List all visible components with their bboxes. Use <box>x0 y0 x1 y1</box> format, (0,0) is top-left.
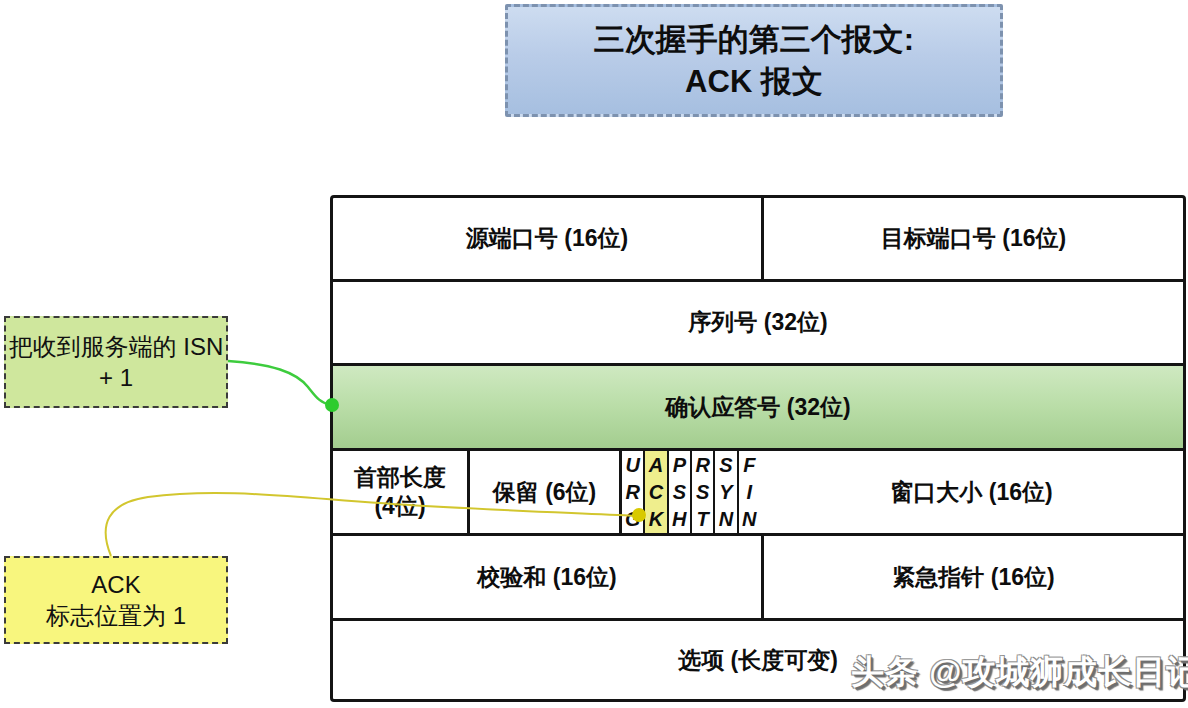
flag-ack-highlighted: A C K <box>643 451 666 533</box>
flag-fin: F I N <box>737 451 760 533</box>
title-box: 三次握手的第三个报文: ACK 报文 <box>505 4 1003 117</box>
ack-annotation-box: ACK 标志位置为 1 <box>4 556 228 644</box>
isn-note-line-1: 把收到服务端的 ISN <box>9 331 224 362</box>
isn-annotation-box: 把收到服务端的 ISN + 1 <box>4 316 228 408</box>
row-flags: 首部长度 (4位) 保留 (6位) U R G A C K P S H <box>333 448 1183 533</box>
tcp-ack-diagram: 三次握手的第三个报文: ACK 报文 源端口号 (16位) 目标端口号 (16位… <box>0 0 1188 708</box>
flag-urg: U R G <box>622 451 643 533</box>
isn-connector-line <box>228 361 331 405</box>
row-checksum: 校验和 (16位) 紧急指针 (16位) <box>333 533 1183 618</box>
watermark-text: 头条 @攻城狮成长日记 <box>851 650 1188 695</box>
header-length-cell: 首部长度 (4位) <box>333 451 467 533</box>
row-ports: 源端口号 (16位) 目标端口号 (16位) <box>333 198 1183 279</box>
ack-number-cell: 确认应答号 (32位) <box>333 366 1183 448</box>
window-size-cell: 窗口大小 (16位) <box>760 451 1183 533</box>
ack-note-line-2: 标志位置为 1 <box>46 600 186 631</box>
flag-rst: R S T <box>690 451 713 533</box>
source-port-cell: 源端口号 (16位) <box>333 198 761 279</box>
tcp-header-table: 源端口号 (16位) 目标端口号 (16位) 序列号 (32位) 确认应答号 (… <box>330 195 1186 702</box>
urgent-pointer-cell: 紧急指针 (16位) <box>761 536 1183 618</box>
flag-syn: S Y N <box>713 451 736 533</box>
header-length-line-1: 首部长度 <box>354 463 446 492</box>
flag-bits-group: U R G A C K P S H R S T <box>619 451 760 533</box>
flag-psh: P S H <box>667 451 690 533</box>
title-line-2: ACK 报文 <box>685 61 823 103</box>
row-sequence: 序列号 (32位) <box>333 279 1183 363</box>
row-ack-number: 确认应答号 (32位) <box>333 363 1183 448</box>
title-line-1: 三次握手的第三个报文: <box>594 19 914 61</box>
dest-port-cell: 目标端口号 (16位) <box>761 198 1183 279</box>
ack-note-line-1: ACK <box>91 569 140 600</box>
isn-note-line-2: + 1 <box>99 362 133 393</box>
reserved-cell: 保留 (6位) <box>467 451 619 533</box>
header-length-line-2: (4位) <box>374 492 425 521</box>
sequence-number-cell: 序列号 (32位) <box>333 282 1183 363</box>
checksum-cell: 校验和 (16位) <box>333 536 761 618</box>
